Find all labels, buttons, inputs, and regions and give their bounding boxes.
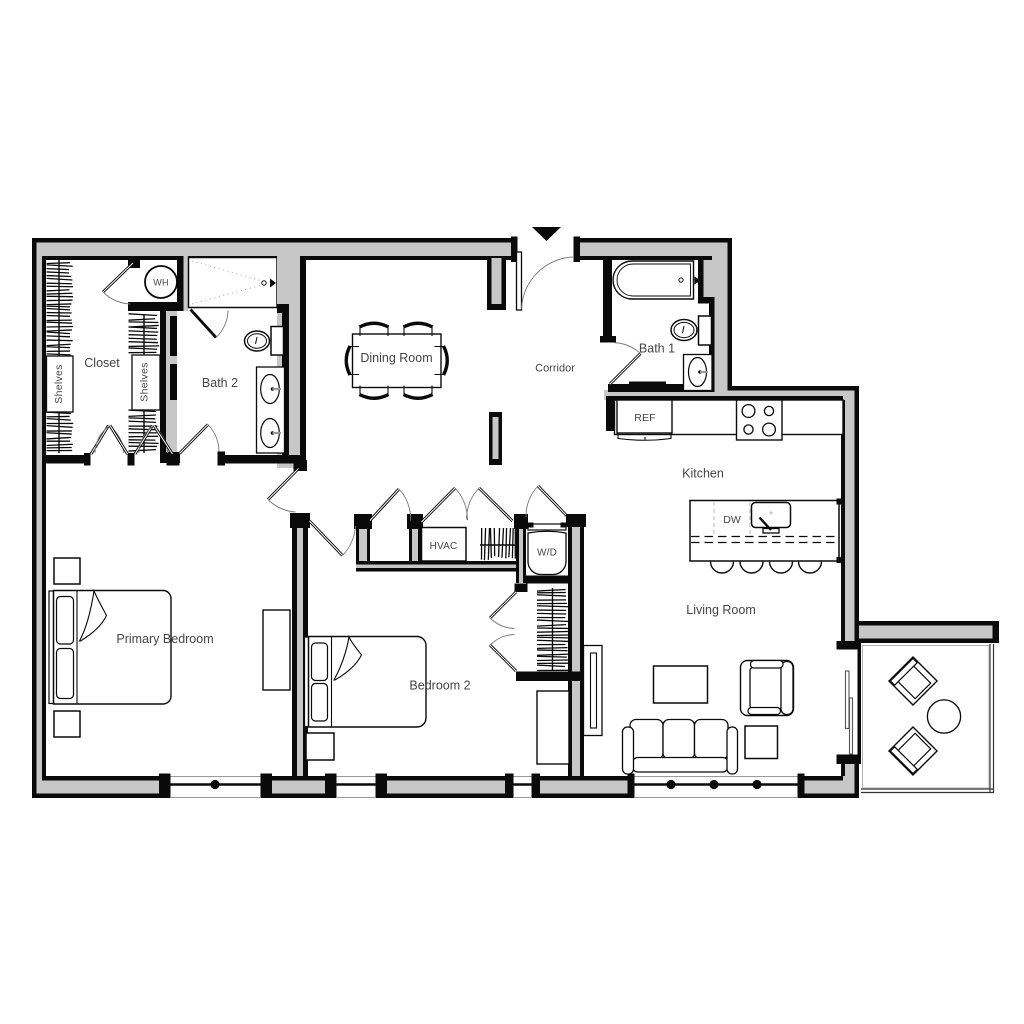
svg-text:W/D: W/D xyxy=(537,548,557,559)
svg-text:REF: REF xyxy=(634,412,656,424)
svg-text:Primary Bedroom: Primary Bedroom xyxy=(116,632,213,646)
svg-text:Shelves: Shelves xyxy=(139,362,151,401)
svg-text:Shelves: Shelves xyxy=(53,364,65,403)
svg-text:WH: WH xyxy=(153,278,169,288)
svg-text:Kitchen: Kitchen xyxy=(682,467,724,481)
svg-text:Bedroom 2: Bedroom 2 xyxy=(409,679,470,693)
svg-text:Living Room: Living Room xyxy=(686,603,755,617)
svg-text:Closet: Closet xyxy=(84,356,120,370)
svg-text:Corridor: Corridor xyxy=(535,363,575,375)
svg-text:DW: DW xyxy=(723,514,741,526)
svg-text:HVAC: HVAC xyxy=(430,541,458,552)
svg-text:Bath 2: Bath 2 xyxy=(202,376,238,390)
svg-text:Bath 1: Bath 1 xyxy=(639,342,675,356)
svg-text:Dining Room: Dining Room xyxy=(360,351,432,365)
